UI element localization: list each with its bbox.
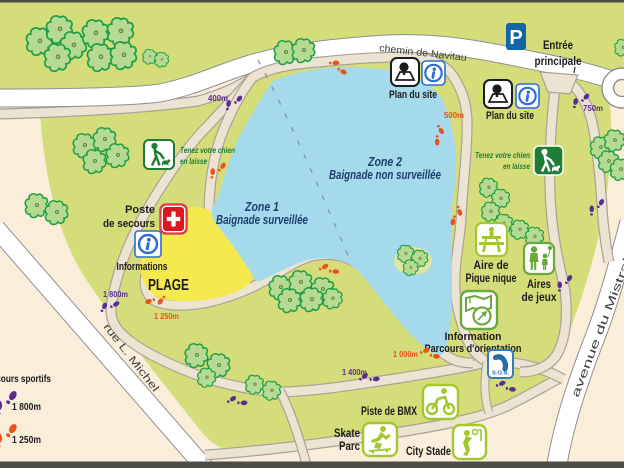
svg-text:de secours: de secours: [103, 218, 155, 230]
svg-text:Piste de BMX: Piste de BMX: [361, 406, 417, 418]
svg-text:Tenez votre chien: Tenez votre chien: [475, 150, 530, 160]
svg-text:en laisse: en laisse: [503, 161, 530, 171]
svg-text:en laisse: en laisse: [180, 156, 207, 166]
svg-text:principale: principale: [535, 56, 582, 68]
svg-text:Skate: Skate: [334, 428, 360, 440]
svg-text:Pique nique: Pique nique: [466, 273, 517, 285]
svg-text:1 000m: 1 000m: [393, 349, 418, 359]
svg-text:Tenez votre chien: Tenez votre chien: [180, 145, 235, 155]
svg-text:400m: 400m: [208, 93, 228, 103]
svg-text:de jeux: de jeux: [522, 292, 558, 304]
svg-text:City Stade: City Stade: [406, 446, 451, 458]
svg-text:Parcours sportifs: Parcours sportifs: [0, 373, 51, 385]
svg-text:Poste: Poste: [125, 204, 155, 216]
svg-text:Information: Information: [445, 331, 502, 343]
svg-text:750m: 750m: [583, 103, 603, 113]
svg-text:Aires: Aires: [527, 279, 551, 291]
svg-text:500m: 500m: [444, 110, 464, 120]
svg-text:S.O.S.: S.O.S.: [492, 371, 509, 377]
svg-text:Plan du site: Plan du site: [486, 110, 534, 122]
svg-text:1 800m: 1 800m: [103, 289, 128, 299]
svg-text:Zone 2: Zone 2: [367, 155, 402, 169]
svg-text:Parc: Parc: [339, 441, 361, 453]
svg-text:Baignade surveillée: Baignade surveillée: [216, 213, 308, 227]
svg-text:Informations: Informations: [117, 261, 168, 273]
svg-text:Aire de: Aire de: [474, 260, 509, 272]
svg-text:1 800m: 1 800m: [12, 401, 41, 413]
svg-text:1 250m: 1 250m: [154, 311, 179, 321]
svg-text:Entrée: Entrée: [543, 40, 573, 52]
svg-text:Plan du site: Plan du site: [389, 89, 437, 101]
svg-text:Zone 1: Zone 1: [244, 200, 279, 214]
svg-text:P: P: [509, 27, 522, 49]
svg-text:PLAGE: PLAGE: [148, 277, 189, 294]
svg-text:1 250m: 1 250m: [12, 434, 41, 446]
svg-text:Baignade non surveillée: Baignade non surveillée: [329, 168, 441, 182]
